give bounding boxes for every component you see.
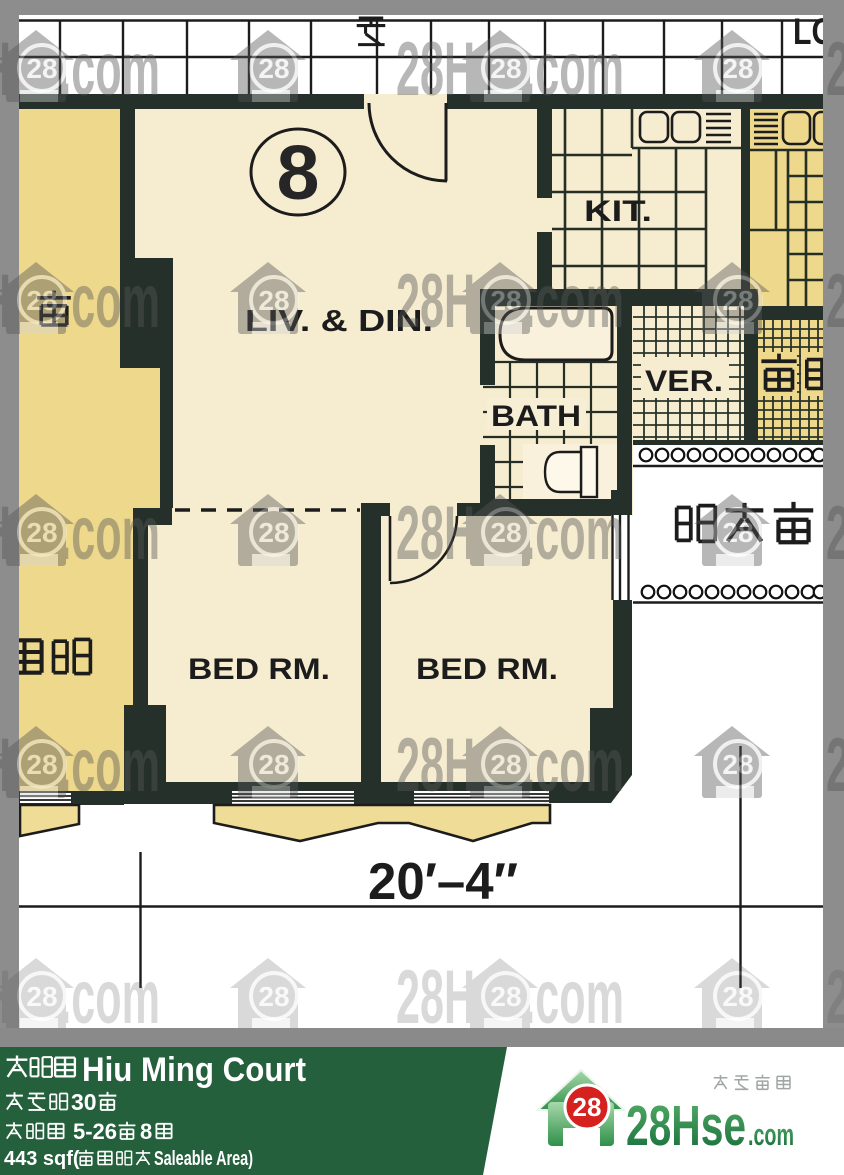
svg-text:28Hse.com: 28Hse.com bbox=[826, 723, 844, 808]
svg-text:BATH: BATH bbox=[491, 400, 581, 433]
svg-text:28Hse.com: 28Hse.com bbox=[826, 27, 844, 112]
svg-text:28: 28 bbox=[573, 1092, 602, 1122]
svg-text:5-26: 5-26 bbox=[73, 1119, 117, 1144]
svg-text:Hiu Ming Court: Hiu Ming Court bbox=[82, 1051, 306, 1089]
svg-text:BED RM.: BED RM. bbox=[416, 653, 558, 686]
svg-text:28Hse: 28Hse bbox=[626, 1094, 746, 1158]
svg-text:8: 8 bbox=[277, 130, 320, 216]
svg-text:BED RM.: BED RM. bbox=[188, 653, 330, 686]
svg-text:28Hse.com: 28Hse.com bbox=[826, 259, 844, 344]
svg-text:VER.: VER. bbox=[645, 365, 723, 398]
svg-text:28Hse.com: 28Hse.com bbox=[826, 491, 844, 576]
svg-text:28Hse.com: 28Hse.com bbox=[826, 955, 844, 1040]
svg-text:20′–4″: 20′–4″ bbox=[368, 853, 518, 911]
svg-text:KIT.: KIT. bbox=[584, 195, 652, 228]
svg-text:8: 8 bbox=[140, 1119, 152, 1144]
svg-text:.com: .com bbox=[748, 1117, 794, 1152]
svg-text:443 sqf(: 443 sqf( bbox=[4, 1148, 80, 1170]
svg-text:Saleable Area): Saleable Area) bbox=[154, 1148, 253, 1170]
svg-text:30: 30 bbox=[71, 1089, 97, 1115]
